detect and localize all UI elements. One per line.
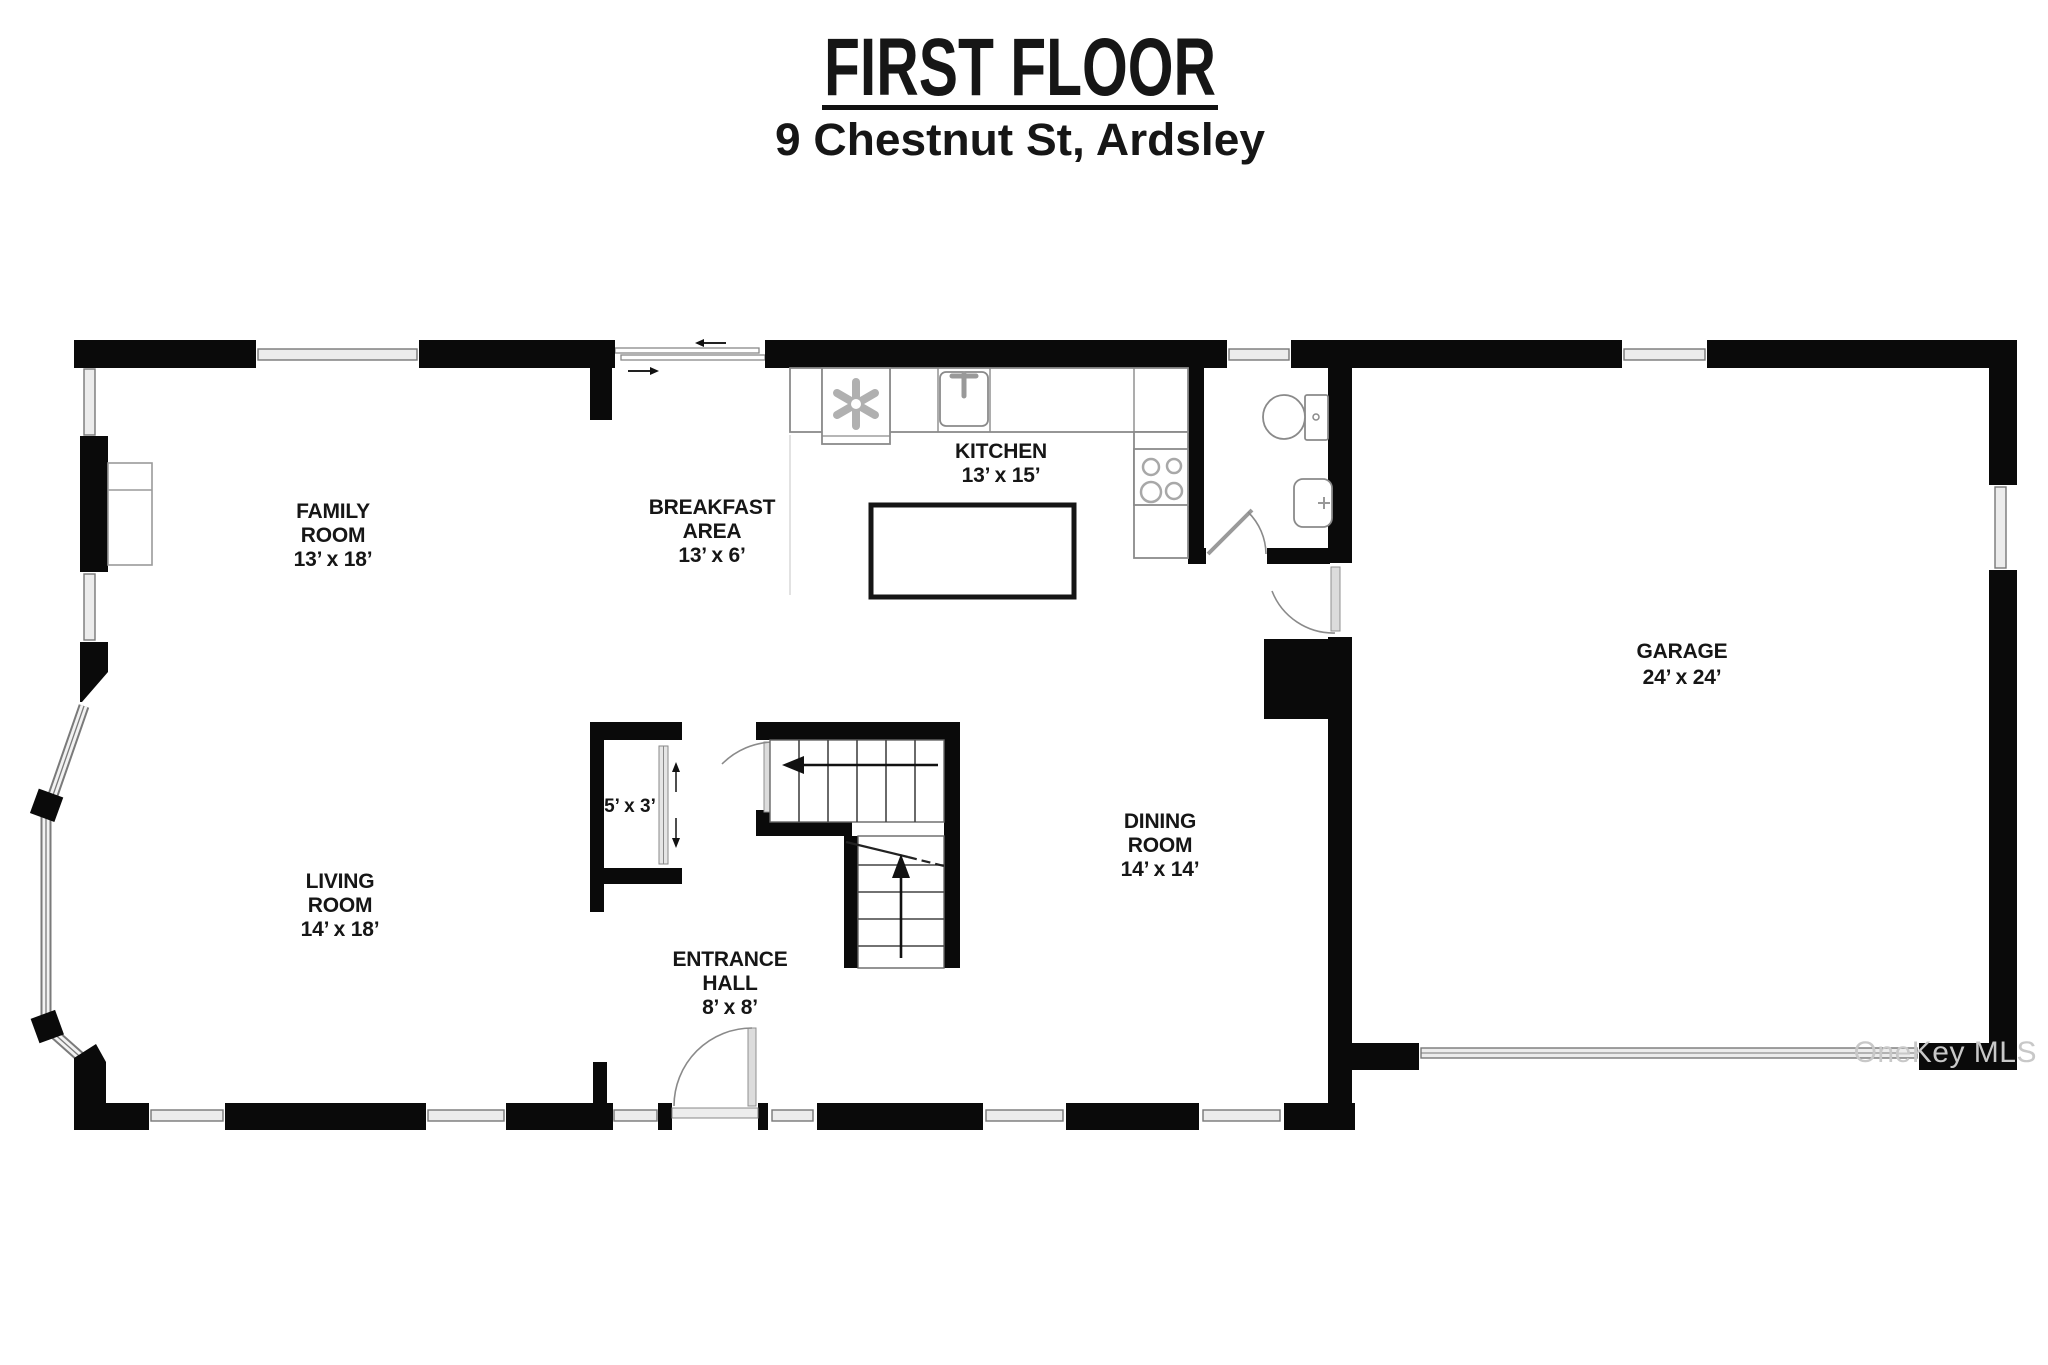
bathroom-door (1208, 510, 1266, 554)
svg-text:14’ x 18’: 14’ x 18’ (301, 918, 380, 941)
window-bottom-2 (426, 1103, 506, 1130)
svg-text:ENTRANCE: ENTRANCE (672, 948, 787, 971)
svg-text:ROOM: ROOM (1128, 834, 1193, 857)
svg-text:ROOM: ROOM (308, 894, 373, 917)
family-room-builtin (108, 463, 152, 565)
svg-text:HALL: HALL (702, 972, 758, 995)
svg-text:13’ x 6’: 13’ x 6’ (678, 544, 745, 567)
bathroom-fixtures (1263, 395, 1332, 527)
title-underline (822, 105, 1218, 110)
window-left-upper (80, 368, 108, 436)
svg-text:13’ x 15’: 13’ x 15’ (962, 464, 1041, 487)
cooktop-burners-icon (1134, 449, 1188, 505)
svg-text:13’ x 18’: 13’ x 18’ (294, 548, 373, 571)
window-left-lower (80, 572, 108, 642)
entry-door (672, 1028, 758, 1118)
basement-stair-door (722, 742, 774, 812)
page-title: FIRST FLOOR (824, 22, 1216, 113)
window-top-family (256, 340, 419, 368)
svg-text:24’ x 24’: 24’ x 24’ (1643, 666, 1722, 689)
kitchen-bath-divider (1188, 368, 1204, 564)
label-family-room: FAMILY ROOM 13’ x 18’ (294, 500, 373, 571)
label-garage: GARAGE 24’ x 24’ (1637, 640, 1728, 689)
window-top-garage (1622, 340, 1707, 368)
window-bottom-4 (768, 1103, 817, 1130)
svg-text:LIVING: LIVING (306, 870, 375, 893)
family-breakfast-divider (590, 368, 612, 420)
window-bottom-6 (1199, 1103, 1284, 1130)
svg-text:FAMILY: FAMILY (296, 500, 370, 523)
entrance-wall-stub (593, 1062, 607, 1107)
svg-text:14’ x 14’: 14’ x 14’ (1121, 858, 1200, 881)
label-breakfast-area: BREAKFAST AREA 13’ x 6’ (649, 496, 776, 567)
window-bottom-5 (983, 1103, 1066, 1130)
floor-plan-canvas: FIRST FLOOR 9 Chestnut St, Ardsley (0, 0, 2048, 1365)
svg-text:KITCHEN: KITCHEN (955, 440, 1047, 463)
label-kitchen: KITCHEN 13’ x 15’ (955, 440, 1047, 487)
label-closet: 5’ x 3’ (604, 796, 656, 817)
window-top-bathroom (1227, 340, 1291, 368)
svg-text:AREA: AREA (683, 520, 742, 543)
kitchen-island (871, 505, 1074, 597)
window-bottom-3 (613, 1103, 658, 1130)
bathroom-sink-icon (1294, 479, 1332, 527)
svg-text:BREAKFAST: BREAKFAST (649, 496, 776, 519)
garage-entry-door (1272, 567, 1340, 633)
garage-door (1419, 1043, 1919, 1070)
label-entrance-hall: ENTRANCE HALL 8’ x 8’ (672, 948, 787, 1019)
fireplace-block (1264, 639, 1340, 719)
window-bottom-1 (149, 1103, 225, 1130)
window-garage-right (1989, 485, 2017, 570)
page-subtitle: 9 Chestnut St, Ardsley (775, 114, 1265, 165)
floor-plan-page: FIRST FLOOR 9 Chestnut St, Ardsley (0, 0, 2048, 1365)
label-living-room: LIVING ROOM 14’ x 18’ (301, 870, 380, 941)
svg-text:8’ x 8’: 8’ x 8’ (702, 996, 758, 1019)
svg-text:ROOM: ROOM (301, 524, 366, 547)
svg-text:DINING: DINING (1124, 810, 1196, 833)
bay-window (46, 706, 86, 1062)
svg-text:GARAGE: GARAGE (1637, 640, 1728, 663)
watermark: OneKey MLS (1854, 1036, 2037, 1069)
kitchen-sink-icon (940, 372, 988, 426)
closet-bypass-door (659, 746, 680, 864)
label-dining-room: DINING ROOM 14’ x 14’ (1121, 810, 1200, 881)
sliding-patio-door (615, 339, 765, 375)
toilet-icon (1263, 395, 1328, 440)
svg-text:5’ x 3’: 5’ x 3’ (604, 796, 656, 817)
header: FIRST FLOOR 9 Chestnut St, Ardsley (775, 22, 1265, 165)
range-fan-icon (822, 368, 890, 444)
